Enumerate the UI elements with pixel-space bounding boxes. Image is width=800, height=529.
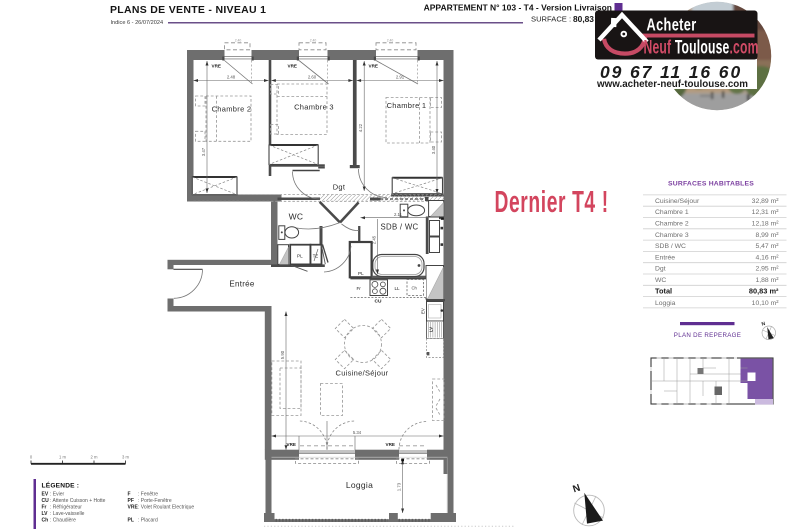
svg-text:2.48: 2.48 <box>227 75 236 80</box>
svg-text:8,99 m²: 8,99 m² <box>755 232 779 239</box>
svg-text:10,10 m²: 10,10 m² <box>752 300 780 307</box>
svg-text:2.91: 2.91 <box>396 75 405 80</box>
svg-text:F: F <box>128 492 131 498</box>
svg-text:WC: WC <box>289 212 304 222</box>
svg-text:VRE: VRE <box>128 505 139 511</box>
svg-text:APPARTEMENT N° 103 - T4 - Vers: APPARTEMENT N° 103 - T4 - Version Livrai… <box>424 2 612 12</box>
svg-text:Chambre 2: Chambre 2 <box>212 105 252 114</box>
svg-text:Chambre 1: Chambre 1 <box>655 209 689 216</box>
svg-text:: Attente Cuisson + Hotte: : Attente Cuisson + Hotte <box>50 498 106 504</box>
svg-text:LL: LL <box>395 286 401 291</box>
svg-text:Neuf Toulouse.com: Neuf Toulouse.com <box>644 38 759 58</box>
svg-text:SDB / WC: SDB / WC <box>381 223 419 232</box>
svg-text:Chambre 1: Chambre 1 <box>387 101 427 110</box>
svg-text:Dgt: Dgt <box>655 266 666 273</box>
svg-text:PL: PL <box>128 518 134 524</box>
svg-text:LÉGENDE :: LÉGENDE : <box>42 481 80 490</box>
svg-text:2,95 m²: 2,95 m² <box>755 266 779 273</box>
svg-text:EV: EV <box>42 492 49 498</box>
svg-text:Entrée: Entrée <box>655 254 675 261</box>
svg-text:Loggia: Loggia <box>346 480 373 490</box>
svg-text:: Placard: : Placard <box>138 518 158 524</box>
svg-text:5,47 m²: 5,47 m² <box>755 243 779 250</box>
svg-text:: Porte-Fenêtre: : Porte-Fenêtre <box>138 498 172 504</box>
svg-text:1,88 m²: 1,88 m² <box>755 277 779 284</box>
svg-text:: Fenêtre: : Fenêtre <box>138 492 158 498</box>
svg-text:PF: PF <box>128 498 134 504</box>
svg-text:PLANS DE VENTE - NIVEAU 1: PLANS DE VENTE - NIVEAU 1 <box>110 4 266 16</box>
svg-text:12,18 m²: 12,18 m² <box>752 221 780 228</box>
svg-text:: Lave-vaisselle: : Lave-vaisselle <box>50 511 85 517</box>
svg-text:SURFACES HABITABLES: SURFACES HABITABLES <box>668 181 754 188</box>
svg-text:LV: LV <box>42 511 49 517</box>
svg-text:2.11: 2.11 <box>394 212 403 217</box>
svg-text:VRE: VRE <box>369 64 378 69</box>
svg-text:Indice 6 - 26/07/2024: Indice 6 - 26/07/2024 <box>111 20 164 26</box>
svg-text:CU: CU <box>42 498 50 504</box>
svg-text:VRE: VRE <box>386 442 395 447</box>
svg-text:Cuisine/Séjour: Cuisine/Séjour <box>336 369 389 378</box>
svg-text:LV: LV <box>429 327 434 332</box>
svg-text:Fr: Fr <box>42 505 47 511</box>
svg-text:3.47: 3.47 <box>201 147 206 156</box>
svg-text:3 m: 3 m <box>122 455 129 460</box>
svg-text:Fr: Fr <box>357 286 362 291</box>
svg-text:Loggia: Loggia <box>655 300 676 307</box>
svg-text:2.40: 2.40 <box>310 38 317 42</box>
svg-text:2.40: 2.40 <box>235 38 242 42</box>
svg-text:Entrée: Entrée <box>229 280 255 289</box>
svg-text:Ch: Ch <box>42 518 49 524</box>
svg-text:Dgt: Dgt <box>333 183 346 192</box>
svg-text:12,31 m²: 12,31 m² <box>752 209 780 216</box>
svg-text:WC: WC <box>655 277 666 284</box>
svg-text:www.acheter-neuf-toulouse.com: www.acheter-neuf-toulouse.com <box>596 79 748 90</box>
svg-text:32,89 m²: 32,89 m² <box>752 198 780 205</box>
svg-text:1.73: 1.73 <box>396 482 401 491</box>
svg-text:VRE: VRE <box>212 64 221 69</box>
svg-text:80,83 m²: 80,83 m² <box>749 287 779 296</box>
svg-text:Ch: Ch <box>412 286 418 291</box>
svg-text:SURFACE :: SURFACE : <box>531 15 571 24</box>
svg-text:VRE: VRE <box>288 64 297 69</box>
svg-text:CU: CU <box>375 299 382 305</box>
svg-text:VRE: VRE <box>287 442 296 447</box>
svg-text:5.34: 5.34 <box>353 430 362 435</box>
svg-text:Cuisine/Séjour: Cuisine/Séjour <box>655 198 700 205</box>
svg-text:Total: Total <box>655 287 672 296</box>
svg-text:3.40: 3.40 <box>431 145 436 154</box>
svg-text:1 m: 1 m <box>59 455 66 460</box>
svg-text:4.22: 4.22 <box>358 123 363 132</box>
svg-text:: Chaudière: : Chaudière <box>50 518 76 524</box>
svg-text:4,16 m²: 4,16 m² <box>755 254 779 261</box>
svg-text:Chambre 3: Chambre 3 <box>294 103 334 112</box>
svg-text:2.45: 2.45 <box>371 235 376 244</box>
svg-text:Acheter: Acheter <box>647 16 697 35</box>
svg-text:Chambre 2: Chambre 2 <box>655 221 689 228</box>
svg-text:2.60: 2.60 <box>308 75 317 80</box>
svg-text:Chambre 3: Chambre 3 <box>655 232 689 239</box>
svg-text:PL: PL <box>297 254 303 259</box>
svg-text:2.40: 2.40 <box>387 38 394 42</box>
svg-text:: Volet Roulant Electrique: : Volet Roulant Electrique <box>138 505 194 511</box>
svg-text:PL: PL <box>358 271 364 276</box>
svg-text:2 m: 2 m <box>91 455 98 460</box>
svg-text:Dernier T4 !: Dernier T4 ! <box>495 186 609 220</box>
svg-text:: Evier: : Evier <box>50 492 65 498</box>
svg-text:EV: EV <box>421 308 426 314</box>
svg-text:: Réfrigérateur: : Réfrigérateur <box>50 505 82 511</box>
svg-text:PLAN DE REPERAGE: PLAN DE REPERAGE <box>674 332 741 339</box>
svg-text:5.90: 5.90 <box>280 350 285 359</box>
svg-text:SDB / WC: SDB / WC <box>655 243 686 250</box>
